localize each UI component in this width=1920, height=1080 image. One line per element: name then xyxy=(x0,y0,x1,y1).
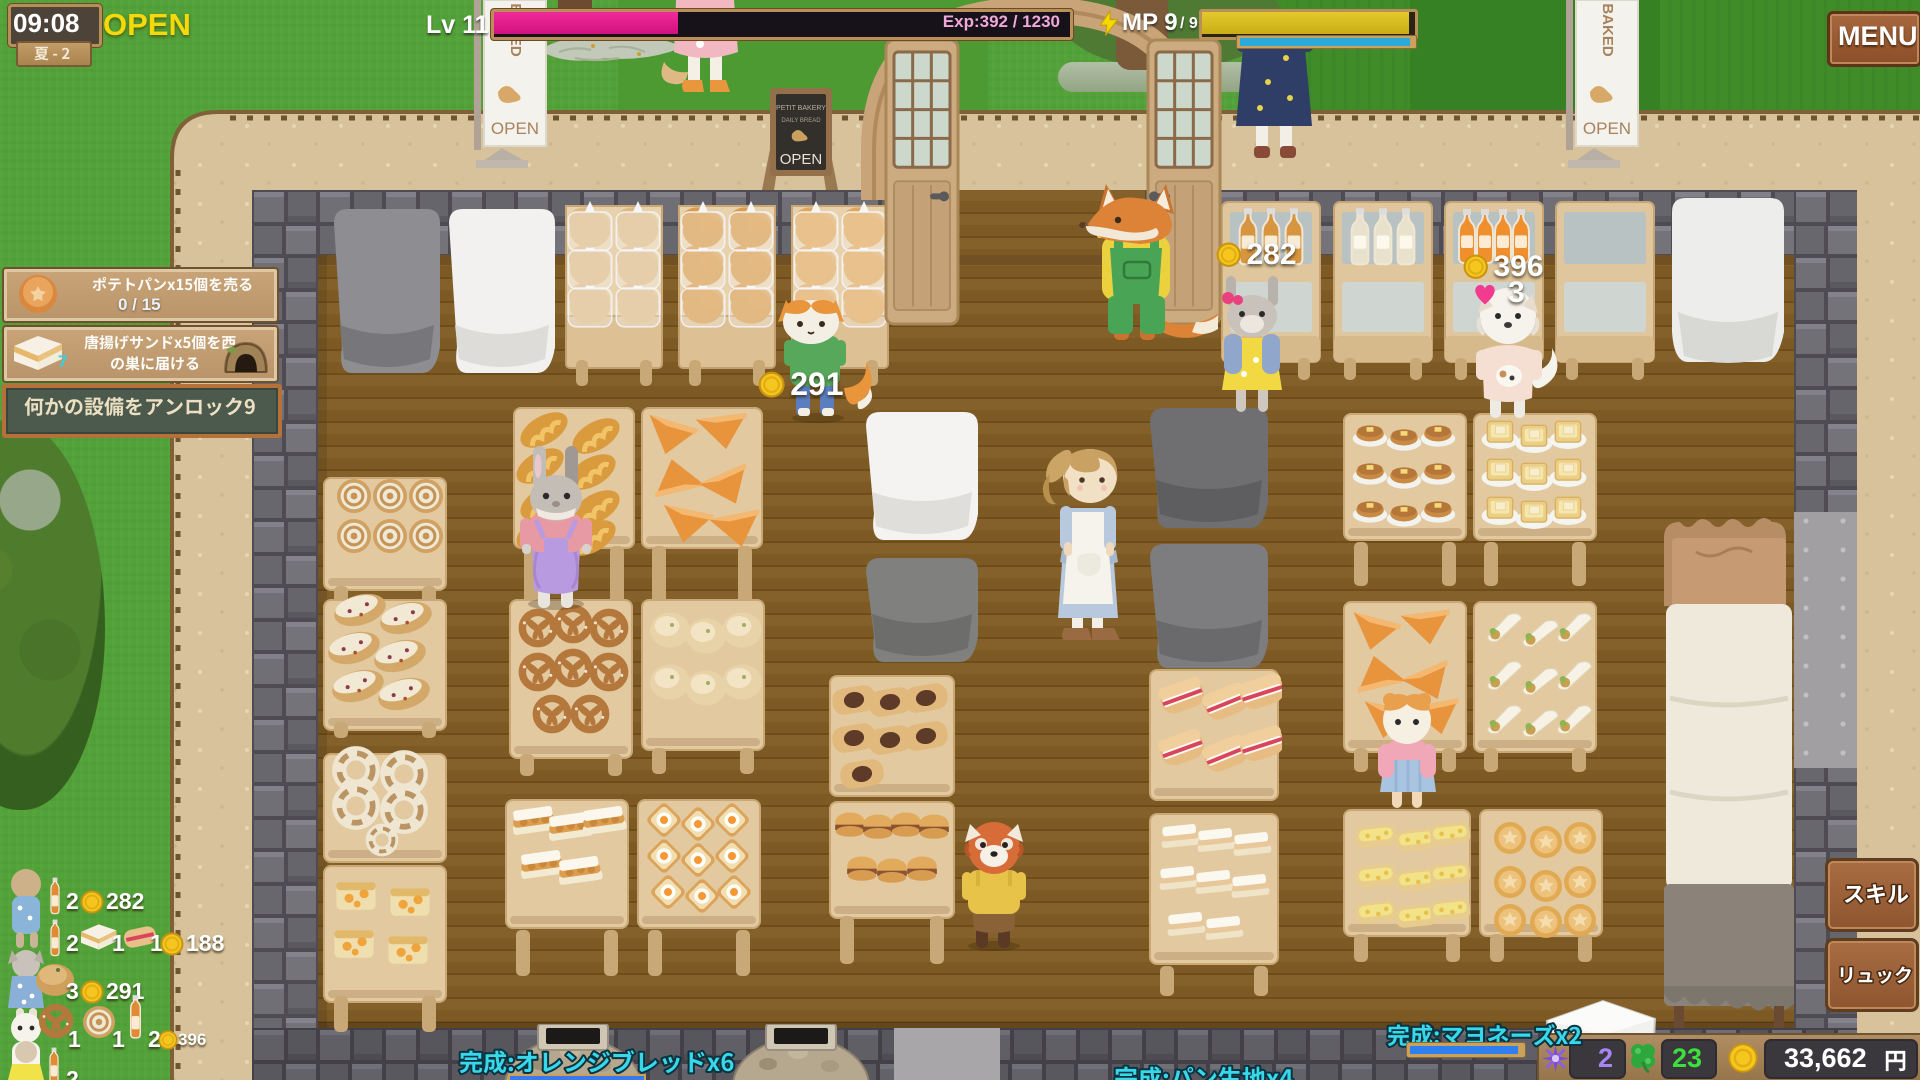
svg-text:OPEN: OPEN xyxy=(780,151,823,168)
svg-text:BAKED: BAKED xyxy=(1599,3,1616,57)
svg-text:PETIT BAKERY: PETIT BAKERY xyxy=(776,105,826,112)
svg-text:DAILY BREAD: DAILY BREAD xyxy=(781,118,821,124)
svg-text:OPEN: OPEN xyxy=(491,119,539,138)
svg-text:OPEN: OPEN xyxy=(1583,119,1631,138)
